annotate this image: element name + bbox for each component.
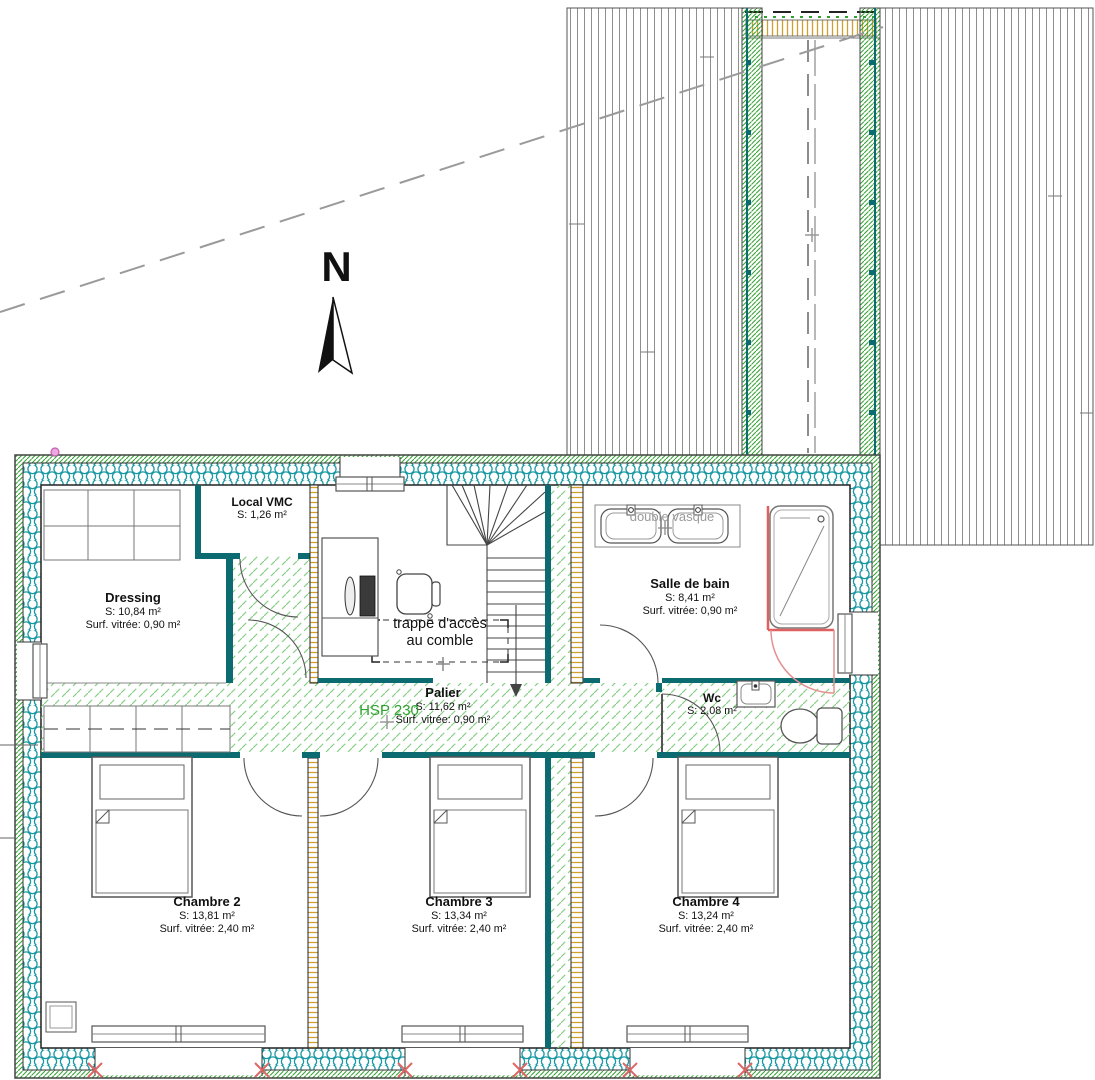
toilet-icon: [781, 709, 819, 743]
room-label-wc: Wc S: 2,08 m²: [687, 691, 737, 718]
room-label-chambre4: Chambre 4 S: 13,24 m² Surf. vitrée: 2,40…: [659, 894, 754, 936]
room-label-chambre2: Chambre 2 S: 13,81 m² Surf. vitrée: 2,40…: [160, 894, 255, 936]
bottom-window-ch3: [402, 1026, 523, 1076]
roof-left-section: [567, 8, 742, 455]
north-arrow-icon: [318, 297, 352, 373]
floor-plan-canvas: N Local VMC S: 1,26 m² Dressing S: 10,84…: [0, 0, 1095, 1080]
bottom-window-ch2: [92, 1026, 265, 1076]
room-label-salle-de-bain: Salle de bain S: 8,41 m² Surf. vitrée: 0…: [643, 576, 738, 618]
chair-icon: [397, 574, 432, 614]
hsp-annotation: HSP 230: [359, 702, 419, 720]
roof-right-section: [880, 8, 1093, 545]
attic-hatch-label: trappe d'accès au comble: [393, 616, 487, 651]
bed-chambre3: [430, 757, 530, 897]
shower-icon: [770, 506, 833, 628]
room-label-dressing: Dressing S: 10,84 m² Surf. vitrée: 0,90 …: [86, 590, 181, 632]
monitor-icon: [345, 577, 355, 615]
double-vasque-label: double vasque: [630, 509, 715, 525]
bed-chambre2: [92, 757, 192, 897]
floor-plan: [0, 448, 880, 1078]
room-label-chambre3: Chambre 3 S: 13,34 m² Surf. vitrée: 2,40…: [412, 894, 507, 936]
north-label: N: [321, 242, 352, 292]
room-label-local-vmc: Local VMC S: 1,26 m²: [231, 495, 292, 522]
pink-marker-icon: [51, 448, 59, 456]
keyboard-icon: [360, 576, 375, 616]
roof-shaft: [742, 8, 880, 455]
bottom-window-ch4: [627, 1026, 748, 1076]
bed-chambre4: [678, 757, 778, 897]
